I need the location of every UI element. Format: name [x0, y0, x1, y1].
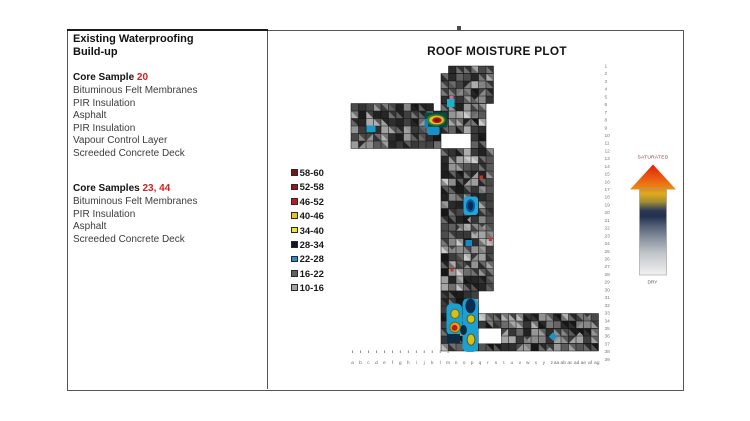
svg-text:26: 26 [605, 257, 611, 263]
svg-text:j: j [423, 360, 425, 366]
svg-text:ae: ae [581, 361, 587, 366]
svg-text:30: 30 [605, 287, 611, 293]
svg-text:6: 6 [605, 102, 608, 108]
svg-text:SATURATED: SATURATED [637, 155, 668, 161]
svg-text:39: 39 [605, 357, 611, 363]
svg-text:34: 34 [605, 318, 611, 324]
svg-text:13: 13 [605, 156, 611, 162]
svg-text:h: h [407, 360, 410, 366]
svg-text:u: u [511, 361, 514, 366]
svg-text:32: 32 [605, 303, 611, 309]
svg-text:t: t [503, 360, 505, 366]
svg-text:5: 5 [605, 94, 608, 100]
svg-text:ab: ab [560, 360, 566, 366]
svg-text:4: 4 [605, 87, 608, 93]
svg-text:s: s [495, 361, 498, 366]
svg-text:y: y [543, 361, 546, 366]
svg-text:12: 12 [605, 148, 611, 154]
svg-text:21: 21 [605, 218, 611, 224]
svg-text:37: 37 [605, 341, 611, 347]
svg-text:c: c [367, 361, 370, 366]
svg-text:8: 8 [605, 118, 608, 124]
svg-text:9: 9 [605, 125, 608, 131]
svg-text:3: 3 [605, 79, 608, 85]
svg-text:f: f [392, 360, 394, 366]
svg-text:o: o [463, 361, 466, 366]
svg-text:d: d [375, 360, 378, 366]
svg-text:e: e [383, 361, 386, 366]
svg-text:20: 20 [605, 210, 611, 216]
svg-text:7: 7 [605, 110, 608, 116]
svg-text:g: g [399, 361, 402, 366]
svg-text:r: r [487, 360, 489, 366]
svg-text:n: n [455, 361, 458, 366]
svg-text:10: 10 [605, 133, 611, 139]
svg-text:23: 23 [605, 233, 611, 239]
svg-text:i: i [416, 360, 417, 366]
svg-text:ad: ad [574, 360, 580, 366]
svg-text:l: l [440, 360, 441, 366]
svg-text:q: q [479, 361, 482, 366]
svg-text:35: 35 [605, 326, 611, 332]
svg-text:31: 31 [605, 295, 611, 301]
svg-text:x: x [535, 361, 538, 366]
svg-text:v: v [519, 361, 522, 366]
svg-text:38: 38 [605, 349, 611, 355]
svg-text:w: w [526, 361, 530, 366]
svg-text:ag: ag [594, 361, 600, 366]
svg-text:36: 36 [605, 334, 611, 340]
svg-text:p: p [471, 361, 474, 366]
svg-text:DRY: DRY [647, 280, 658, 286]
svg-text:33: 33 [605, 311, 611, 317]
svg-text:22: 22 [605, 226, 611, 232]
svg-text:18: 18 [605, 195, 611, 201]
svg-text:1: 1 [605, 64, 608, 70]
svg-text:28: 28 [605, 272, 611, 278]
svg-text:aa: aa [554, 361, 560, 366]
svg-text:14: 14 [605, 164, 611, 170]
svg-text:a: a [351, 361, 354, 366]
svg-text:25: 25 [605, 249, 611, 255]
svg-text:m: m [446, 361, 450, 366]
svg-text:24: 24 [605, 241, 611, 247]
svg-text:19: 19 [605, 203, 611, 209]
svg-text:af: af [588, 360, 593, 366]
svg-text:k: k [431, 360, 434, 366]
svg-text:11: 11 [605, 141, 610, 147]
svg-text:17: 17 [605, 187, 611, 193]
svg-text:16: 16 [605, 179, 611, 185]
svg-text:27: 27 [605, 264, 611, 270]
svg-text:b: b [359, 360, 362, 366]
svg-text:29: 29 [605, 280, 611, 286]
svg-text:ac: ac [567, 361, 573, 366]
svg-text:2: 2 [605, 71, 608, 77]
svg-text:15: 15 [605, 172, 611, 178]
